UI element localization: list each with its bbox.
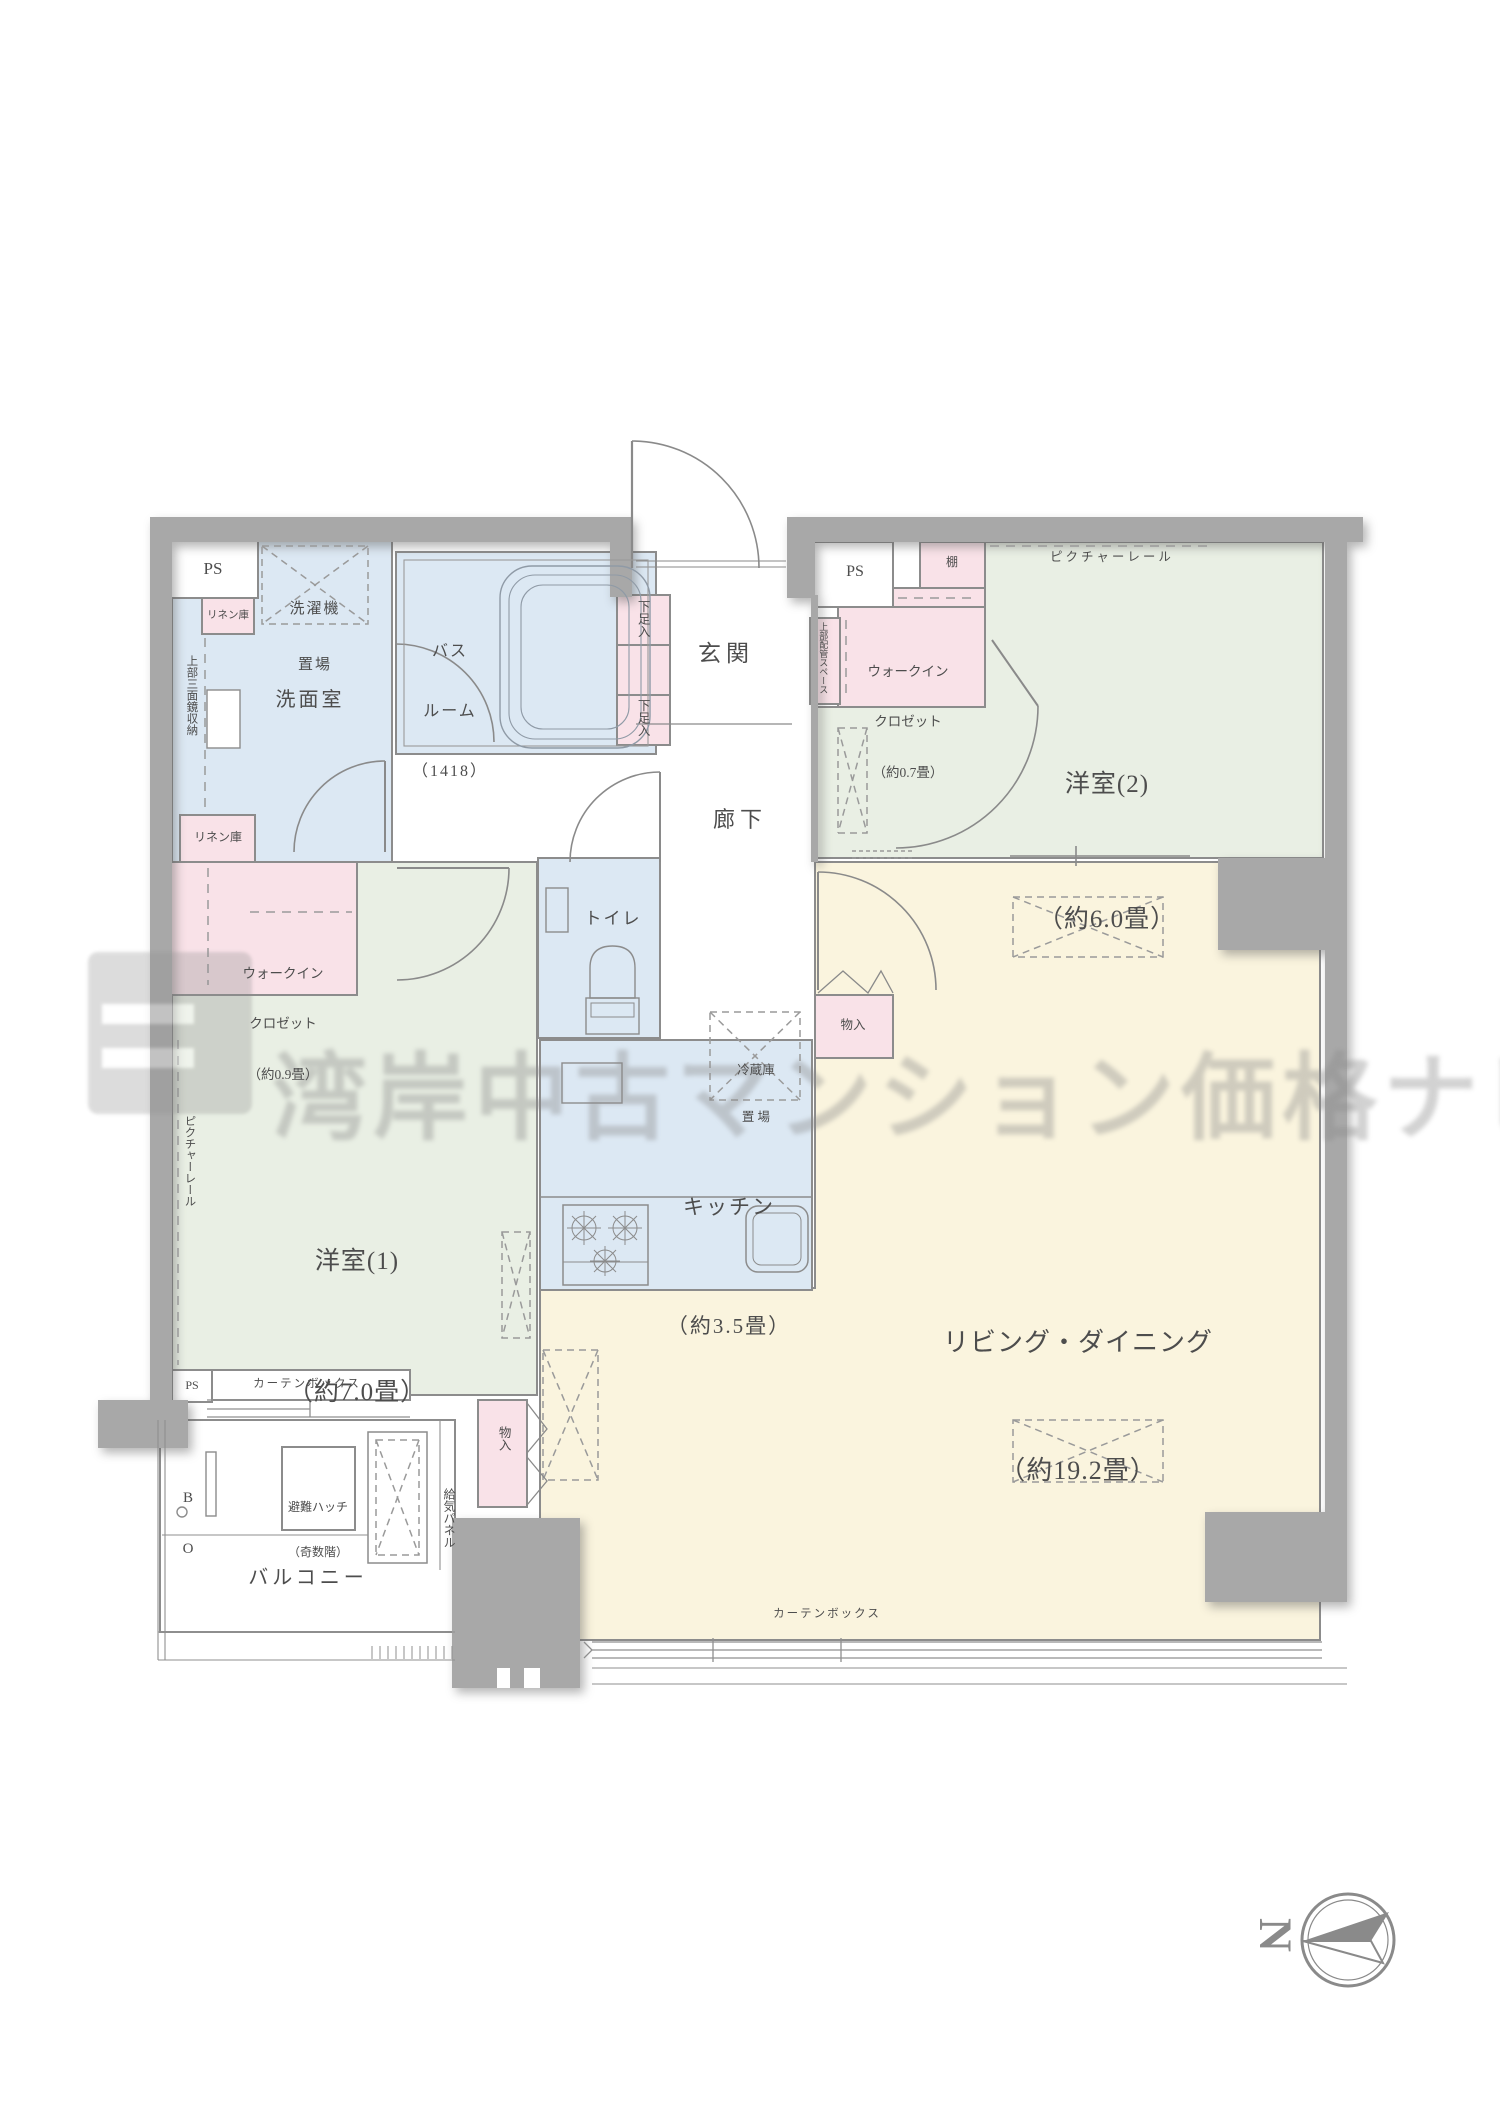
balcony-hatch-marks: [372, 1646, 452, 1659]
shelf-label: 棚: [946, 555, 958, 570]
wall-top-left: [150, 517, 632, 542]
bedroom2-label: 洋室(2) （約6.0畳）: [1038, 672, 1176, 987]
pipe-space-label: 上部配管スペース: [817, 622, 828, 694]
bq-label: B O: [183, 1455, 194, 1576]
watermark-text: 湾岸中古マンション価格ナビ: [272, 1022, 1500, 1159]
bedroom1-label: 洋室(1) （約7.0畳）: [288, 1152, 426, 1458]
watermark-logo-slot2: [102, 1048, 194, 1068]
wall-block-balcony-left: [98, 1400, 188, 1448]
wall-top-right: [787, 517, 1363, 542]
curtain-box-living-label: カーテンボックス: [773, 1607, 881, 1621]
balcony-rail-bottom: [158, 1632, 455, 1660]
linen-bottom-label: リネン庫: [194, 830, 242, 845]
living-window-end: [584, 1642, 592, 1658]
watermark-logo-slot1: [102, 1004, 194, 1024]
shoe-top-label: 下足入: [634, 600, 650, 638]
floor-plan: 湾岸中古マンション価格ナビ PS 洗濯機 置場 バス ルーム （1418） 洗面…: [0, 0, 1500, 2121]
shoe-bottom-label: 下足入: [634, 699, 650, 737]
toilet-label: トイレ: [585, 908, 642, 929]
vanity-mirror-cabinet: [207, 690, 240, 748]
compass: [1302, 1894, 1394, 1986]
wall-entrance-right: [787, 540, 815, 598]
wall-entrance-left: [610, 540, 632, 597]
wall-block-bottom-center: [452, 1518, 580, 1688]
ps-top-left-label: PS: [204, 558, 223, 579]
storage-top-label: 物入: [840, 1018, 865, 1034]
ps-bottom-label: PS: [185, 1378, 198, 1393]
ps-top-right-label: PS: [846, 562, 864, 582]
wall-column-ld: [1218, 858, 1347, 950]
compass-north-letter: N: [1248, 1918, 1302, 1952]
wic1-label: ウォークイン クロゼット （約0.9畳）: [243, 932, 324, 1101]
wall-notch1: [497, 1668, 510, 1688]
curtain-box-bedroom1-label: カーテンボックス: [253, 1377, 361, 1391]
entrance-label: 玄関: [698, 640, 754, 669]
entrance-door: [632, 441, 786, 568]
kitchen-label: キッチン （約3.5畳）: [667, 1108, 791, 1387]
box-shoe-middle: [617, 645, 670, 695]
linen-top-label: リネン庫: [207, 609, 249, 622]
air-supply-panel-label: 給気パネル: [441, 1488, 456, 1548]
room-toilet: [538, 858, 660, 1038]
watermark-logo: [88, 952, 252, 1114]
laundry-label: 洗濯機 置場: [289, 562, 340, 693]
outer-sill-lines: [592, 1668, 1347, 1684]
mirror-cabinet-label: 上部三面鏡収納: [184, 655, 198, 736]
escape-hatch-label: 避難ハッチ （奇数階）: [288, 1470, 348, 1575]
bathroom-label: バス ルーム （1418）: [412, 602, 488, 802]
washroom-label: 洗面室: [276, 688, 345, 713]
toilet-door: [570, 772, 660, 862]
picture-rail-left-label: ピクチャーレール: [182, 1115, 196, 1207]
wic2-label: ウォークイン クロゼット （約0.7畳）: [868, 630, 949, 799]
hallway-label: 廊下: [713, 806, 767, 834]
storage-bottom-label: 物入: [495, 1426, 511, 1451]
living-label: リビング・ダイニング （約19.2畳）: [943, 1236, 1213, 1536]
picture-rail-top-label: ピクチャーレール: [1050, 550, 1174, 566]
wall-notch2: [524, 1668, 540, 1688]
box-storage-bottom: [478, 1400, 527, 1507]
living-window: [592, 1638, 1322, 1662]
wall-block-bottom-right: [1205, 1512, 1347, 1602]
